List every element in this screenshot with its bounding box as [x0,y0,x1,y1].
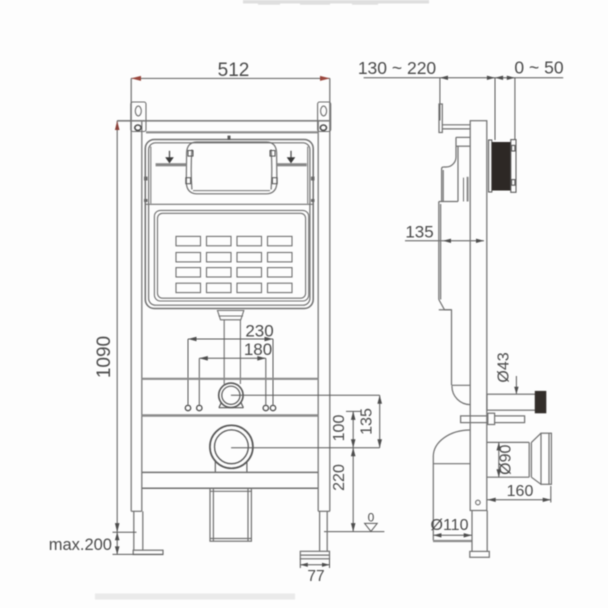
svg-text:160: 160 [507,483,534,500]
svg-text:0: 0 [368,511,375,525]
svg-text:135: 135 [405,223,433,242]
svg-text:100: 100 [331,415,348,442]
svg-text:0 ~ 50: 0 ~ 50 [514,58,563,78]
svg-text:Ø43: Ø43 [496,352,513,382]
svg-text:Ø90: Ø90 [498,444,515,474]
svg-text:Ø110: Ø110 [431,517,469,534]
svg-text:max.200: max.200 [49,536,112,554]
svg-text:135: 135 [359,408,376,435]
svg-text:230: 230 [245,322,273,341]
svg-text:1090: 1090 [94,336,115,378]
svg-text:220: 220 [331,464,348,491]
svg-text:77: 77 [307,568,324,585]
svg-text:130 ~ 220: 130 ~ 220 [358,58,437,78]
svg-text:180: 180 [244,340,272,359]
